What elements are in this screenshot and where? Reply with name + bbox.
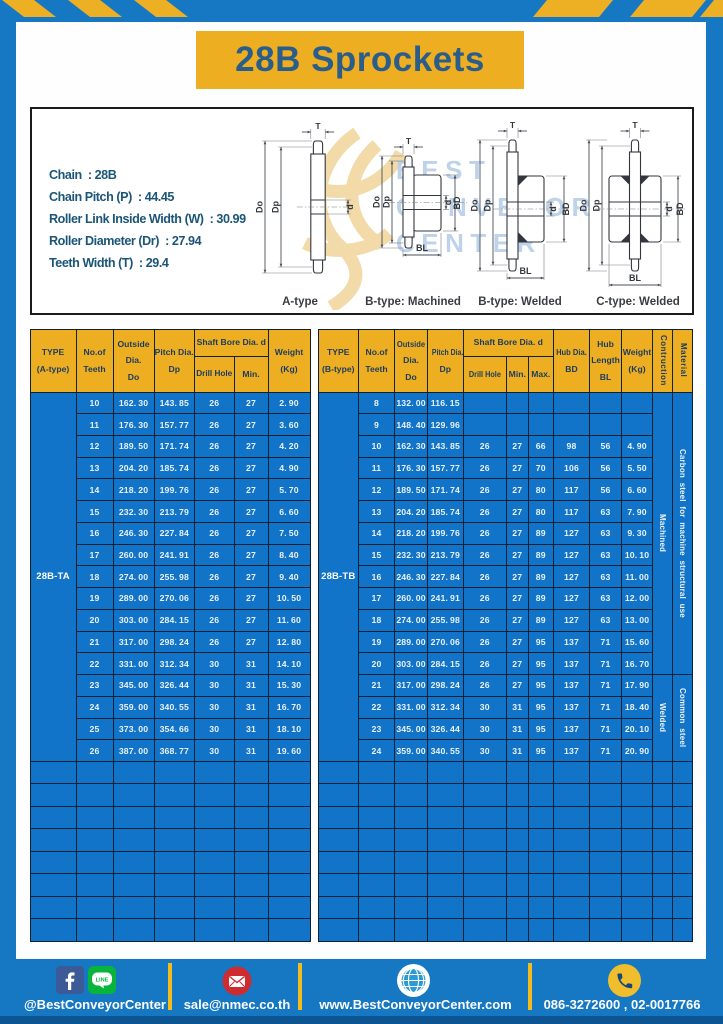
svg-text:d: d bbox=[548, 206, 558, 212]
svg-text:Dp: Dp bbox=[483, 199, 493, 211]
svg-text:T: T bbox=[406, 136, 412, 146]
svg-text:Do: Do bbox=[255, 201, 265, 213]
svg-text:LINE: LINE bbox=[96, 978, 109, 984]
svg-text:BD: BD bbox=[675, 202, 685, 215]
svg-text:Do: Do bbox=[470, 199, 480, 211]
svg-text:Dp: Dp bbox=[271, 201, 281, 213]
svg-text:B-type: Machined: B-type: Machined bbox=[365, 296, 461, 308]
svg-text:BL: BL bbox=[520, 266, 532, 276]
svg-text:B-type: Welded: B-type: Welded bbox=[478, 296, 562, 308]
svg-text:d: d bbox=[664, 206, 674, 212]
svg-text:C-type: Welded: C-type: Welded bbox=[596, 296, 680, 308]
svg-text:T: T bbox=[510, 120, 516, 130]
svg-text:BD: BD bbox=[561, 202, 571, 215]
svg-text:A-type: A-type bbox=[282, 296, 318, 308]
svg-text:Dp: Dp bbox=[592, 199, 602, 211]
svg-text:T: T bbox=[315, 121, 321, 131]
svg-text:T: T bbox=[632, 120, 638, 130]
svg-text:Dp: Dp bbox=[382, 196, 392, 208]
svg-text:BL: BL bbox=[629, 273, 641, 283]
svg-text:Do: Do bbox=[579, 199, 589, 211]
svg-text:BL: BL bbox=[416, 243, 428, 253]
svg-text:Do: Do bbox=[372, 196, 382, 208]
svg-text:BD: BD bbox=[452, 196, 462, 209]
svg-text:d: d bbox=[345, 204, 355, 210]
